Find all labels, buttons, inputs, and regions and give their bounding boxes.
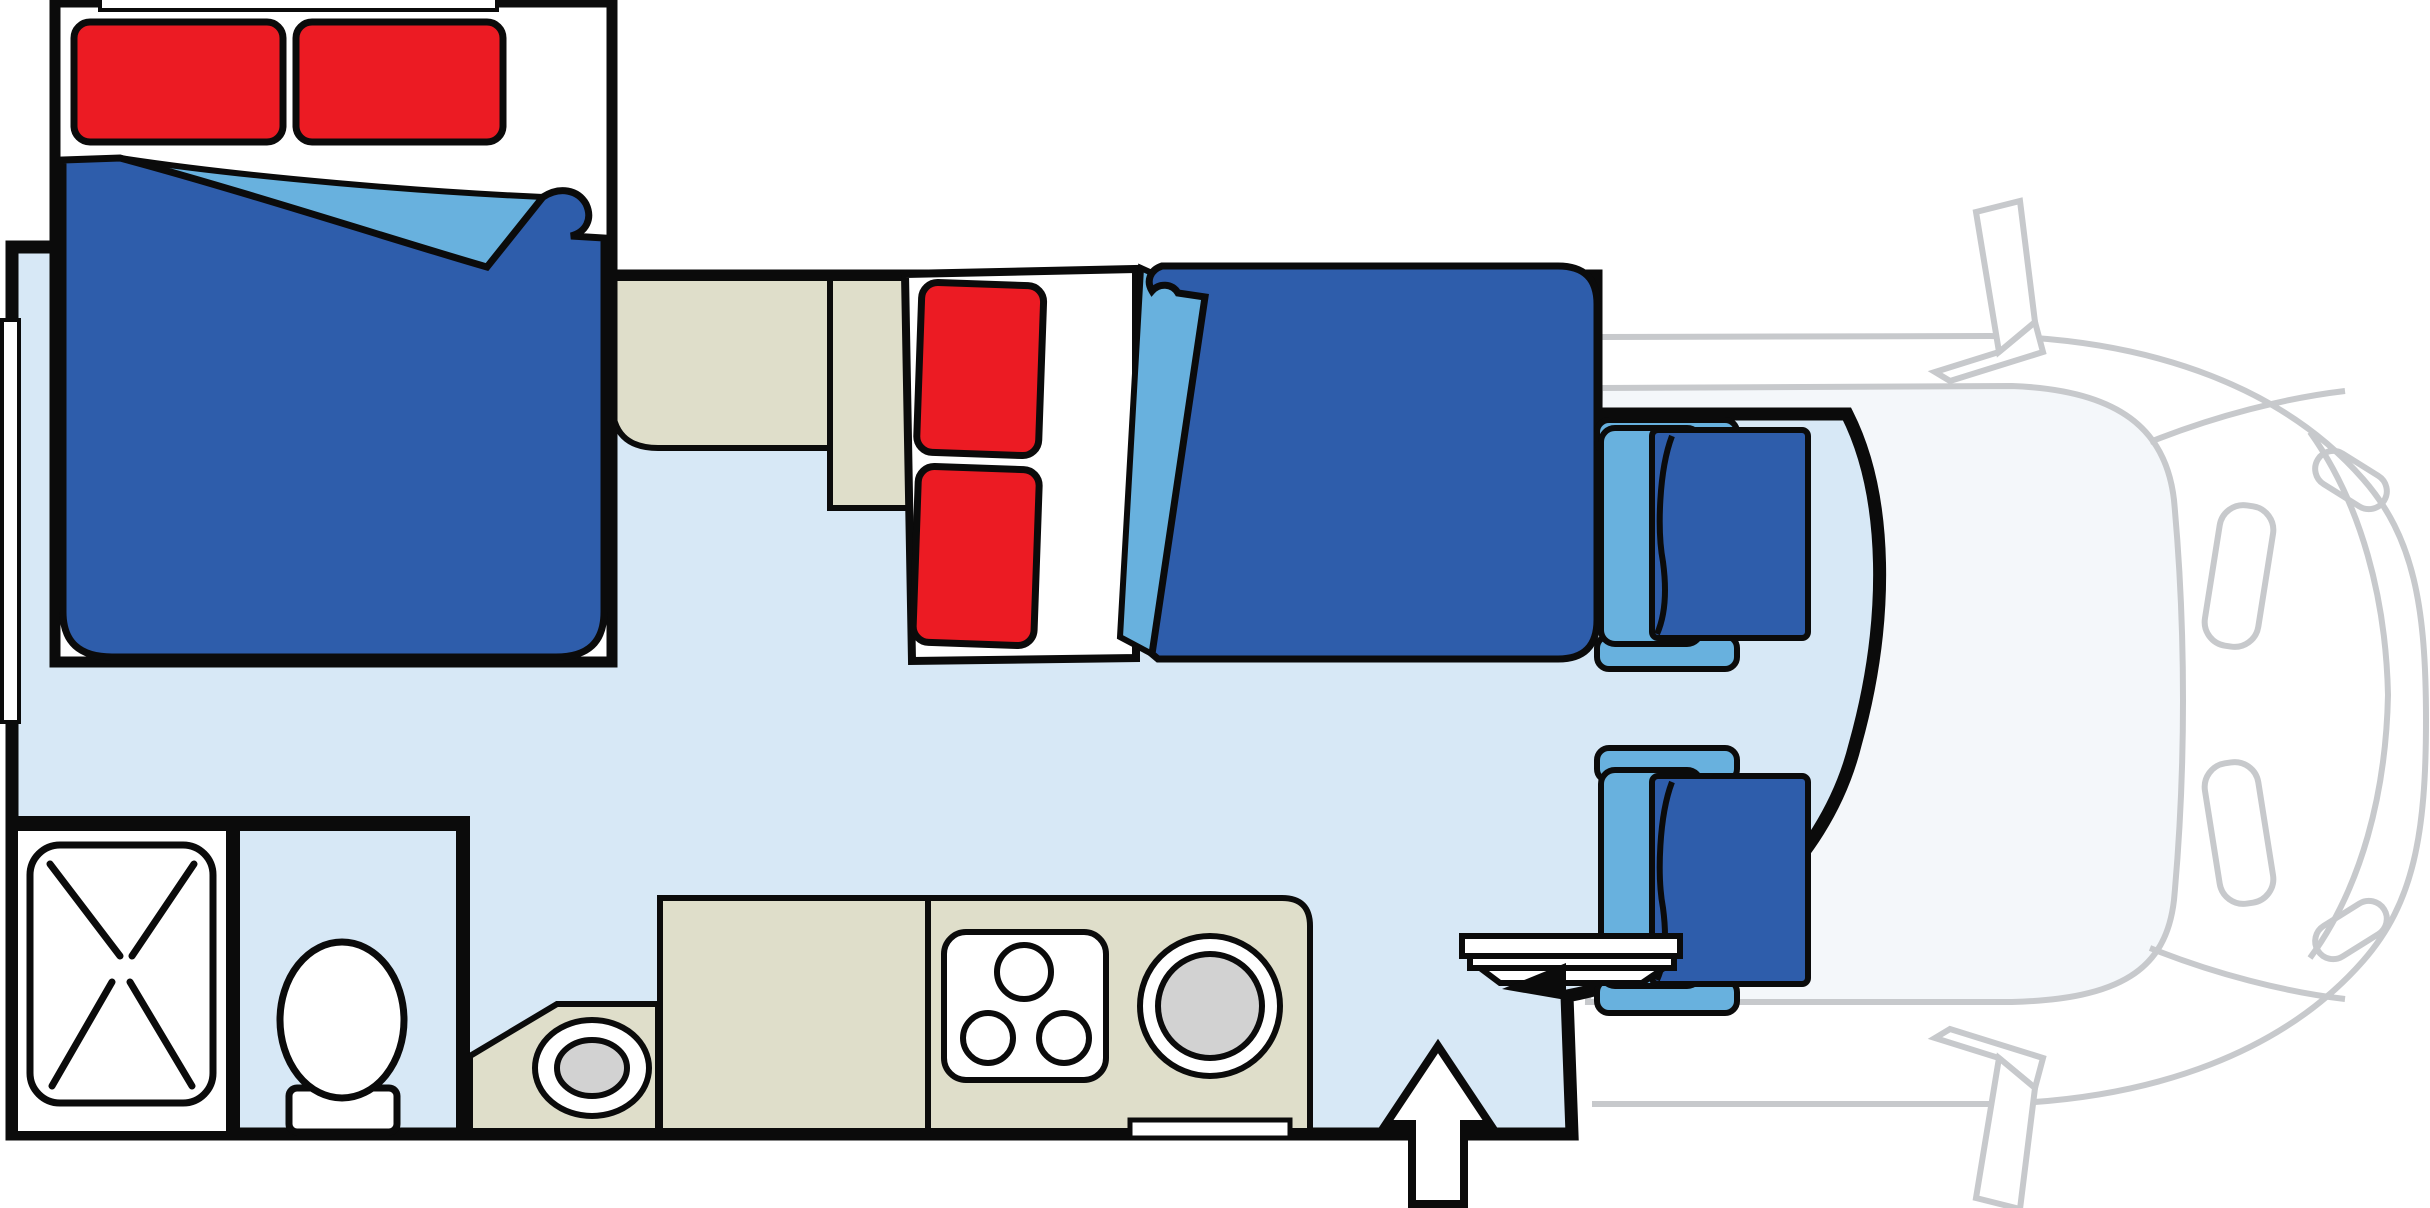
bathroom-wall-divider [226,823,240,1135]
seat-cushion [1652,430,1808,638]
passenger-seat [1597,420,1808,669]
duvet [63,158,604,657]
pillow-left [74,22,283,142]
toilet-bowl [280,942,404,1098]
pillow-bottom [913,466,1040,646]
toilet [280,942,404,1132]
stove-three-burner [944,932,1106,1080]
pillow-top [916,282,1044,456]
kitchen-counter-left [660,898,928,1131]
duvet [1149,266,1597,659]
window-bed-head [100,0,497,10]
corner-basin-inner [557,1040,627,1096]
cab-mirror-bottom-icon [1935,1029,2043,1208]
burner-right [1039,1013,1089,1063]
cab-mirror-top-icon [1935,201,2043,381]
cab-hood-front-line [2310,432,2388,958]
burner-top [997,945,1051,999]
floorplan-page [0,0,2430,1208]
cab-headlight-bottom-icon [2201,759,2277,908]
cab-fender-bottom-icon [2308,894,2393,966]
entry-step-window [1130,1120,1290,1138]
cab-headlight-top-icon [2201,502,2277,651]
single-bed [905,266,1597,661]
cabinet-block-1 [612,278,830,448]
window-left-wall [2,320,19,722]
pillow-right [296,22,503,142]
cab-a-pillar-bottom [2150,948,2345,999]
table-skirt [1480,968,1664,983]
kitchen-sink-inner [1158,954,1262,1058]
shower-tray [30,845,213,1103]
cab-over-bed [55,0,612,662]
burner-left [963,1013,1013,1063]
dining-table [1462,936,1680,983]
floorplan-canvas [0,0,2430,1208]
